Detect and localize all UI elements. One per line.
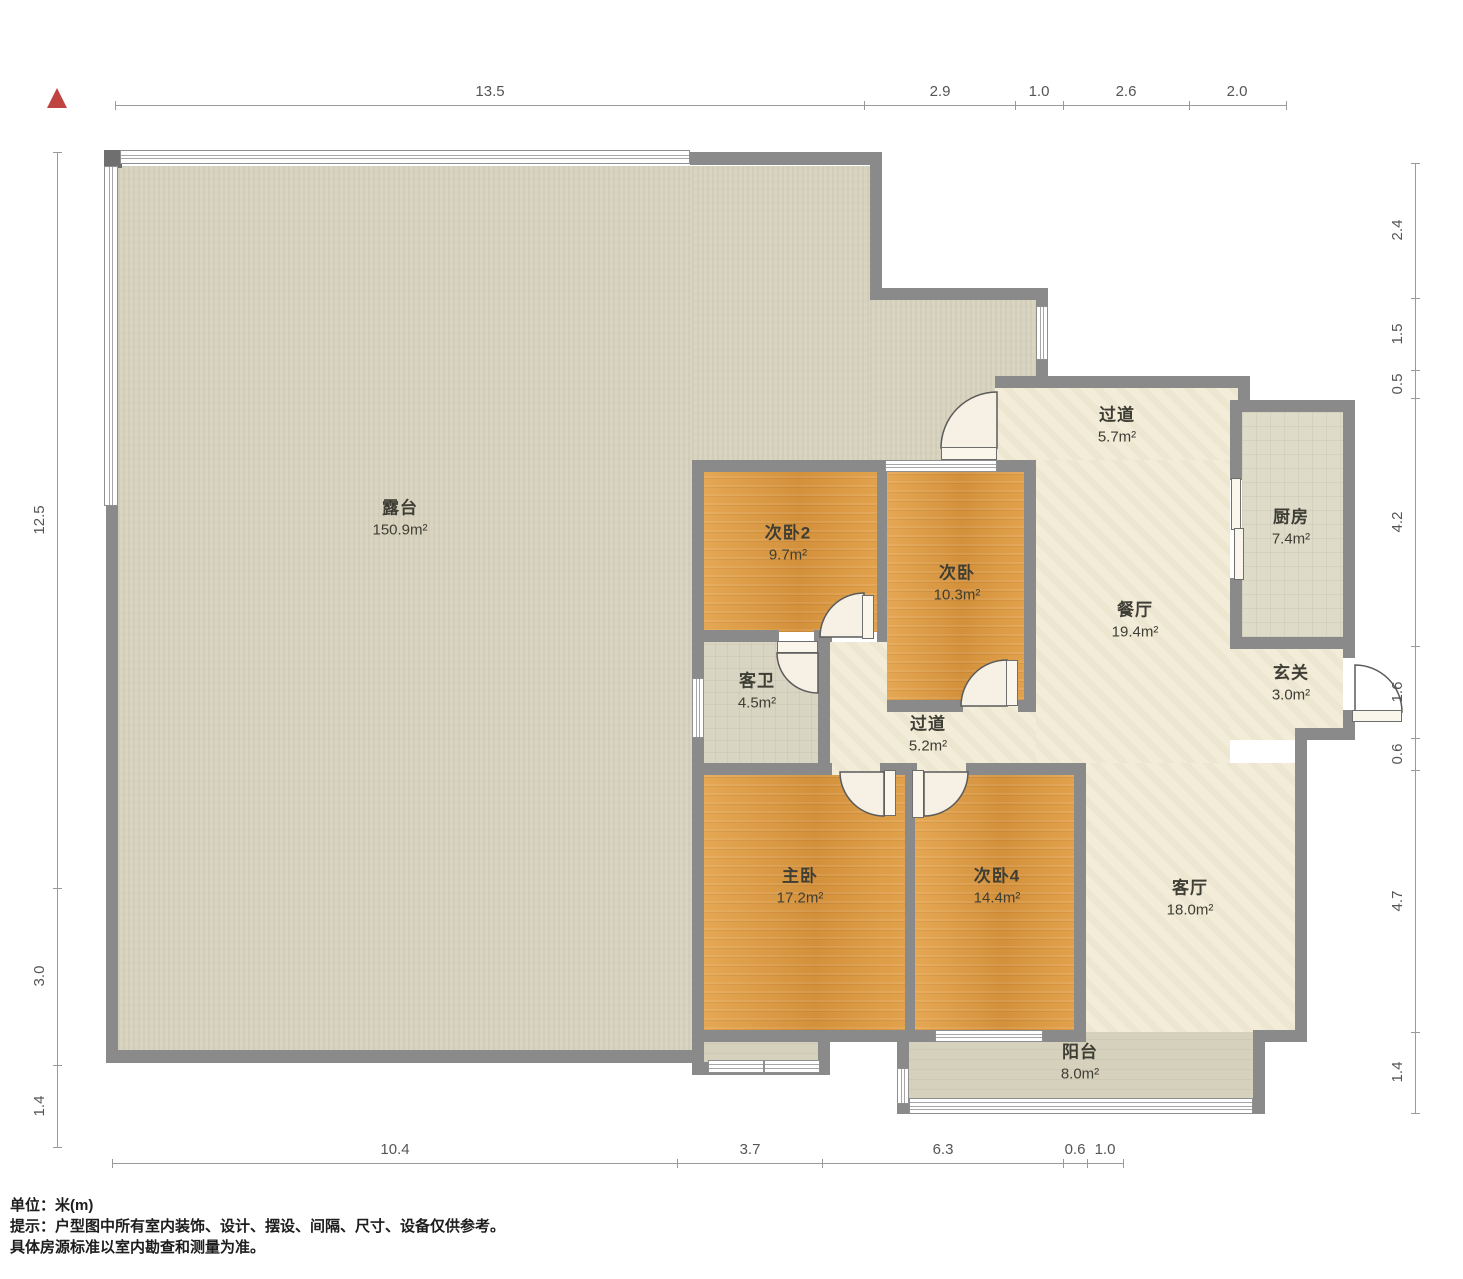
dimension-line [1415,163,1416,1113]
dimension-line [1411,738,1420,739]
room-name: 次卧2 [765,519,811,544]
dimension-line [1063,1159,1064,1168]
dimension-label: 3.0 [31,954,49,998]
wall [1233,400,1355,412]
dimension-label: 12.5 [31,498,49,542]
dimension-line [1411,298,1420,299]
dimension-line [53,1065,62,1066]
room-label: 厨房7.4m² [1272,503,1310,548]
master-door-slab [884,770,896,816]
wall [106,1050,704,1063]
bedroom2-door-slab [862,595,874,639]
room-name: 露台 [372,494,427,519]
wall [703,763,832,775]
kitchen-slider-panel [1231,478,1241,530]
dimension-line [677,1159,678,1168]
window-terrace-step [1036,306,1048,360]
wall [966,763,1085,775]
dimension-label: 2.6 [1101,83,1151,100]
dimension-line [1411,1113,1420,1114]
wall [1018,700,1036,712]
bedroom4-door-slab [912,770,924,818]
wall [870,288,1048,300]
wall [1230,400,1242,480]
room-label: 次卧414.4m² [974,862,1021,907]
room-area: 4.5m² [738,695,776,712]
dimension-line [112,1159,113,1168]
dimension-line [53,152,62,153]
dimension-line [115,105,1286,106]
dimension-label: 1.5 [1389,312,1407,356]
wall [692,460,704,1052]
wall [1253,1030,1265,1114]
dimension-label: 2.0 [1212,83,1262,100]
master-door-arc-icon [840,772,884,816]
room-area: 14.4m² [974,890,1021,907]
wall [1295,736,1307,1042]
room-area: 7.4m² [1272,531,1310,548]
wall [818,642,830,765]
room-label: 次卧10.3m² [934,559,981,604]
dimension-label: 13.5 [465,83,515,100]
room-area: 17.2m² [777,890,824,907]
window-balcony-left [897,1068,909,1104]
window-bay-left-pane [708,1060,764,1073]
room-name: 玄关 [1272,659,1310,684]
dimension-label: 0.5 [1389,362,1407,406]
dimension-line [1189,101,1190,110]
dimension-label: 2.9 [915,83,965,100]
window-bathroom [692,678,704,738]
dimension-line [1123,1159,1124,1168]
room-label: 客卫4.5m² [738,667,776,712]
dimension-label: 4.7 [1389,879,1407,923]
terrace-floor-upper [692,166,870,460]
bedroom3-door-arc-icon [961,660,1007,706]
window-terrace-top [120,150,690,164]
footer-standard-line: 具体房源标准以室内勘查和测量为准。 [10,1237,505,1258]
wall [1074,763,1086,1042]
room-name: 次卧 [934,559,981,584]
window-bedroom3-top [885,460,997,472]
terrace-door-slab [941,447,997,460]
footer-tip-line: 提示：户型图中所有室内装饰、设计、摆设、间隔、尺寸、设备仅供参考。 [10,1216,505,1237]
wall [877,460,887,642]
dimension-line [1286,101,1287,110]
room-label: 阳台8.0m² [1061,1038,1099,1083]
dimension-label: 0.6 [1389,732,1407,776]
room-label: 露台150.9m² [372,494,427,539]
dimension-label: 1.4 [31,1084,49,1128]
dimension-line [1411,398,1420,399]
dimension-line [53,1147,62,1148]
wall [1230,637,1355,649]
room-label: 过道5.2m² [909,710,947,755]
room-area: 9.7m² [765,547,811,564]
wall [995,460,1036,472]
wall [692,1030,909,1042]
room-name: 次卧4 [974,862,1021,887]
wall [995,376,1250,388]
dimension-label: 3.7 [725,1141,775,1158]
dimension-line [1087,1159,1088,1168]
wall [1343,400,1355,658]
room-label: 餐厅19.4m² [1112,596,1159,641]
room-label: 过道5.7m² [1098,401,1136,446]
room-area: 5.2m² [909,738,947,755]
window-terrace-left [104,166,118,506]
room-area: 8.0m² [1061,1066,1099,1083]
bedroom4-door-arc-icon [924,772,968,816]
bedroom3-door-slab [1006,660,1018,706]
north-arrow-icon [47,88,67,108]
wall [106,505,118,1063]
dimension-line [1411,770,1420,771]
room-label: 次卧29.7m² [765,519,811,564]
room-area: 150.9m² [372,522,427,539]
room-name: 餐厅 [1112,596,1159,621]
window-balcony-rail [909,1098,1253,1114]
room-name: 主卧 [777,862,824,887]
dimension-line [1063,101,1064,110]
room-area: 5.7m² [1098,429,1136,446]
wall [1024,460,1036,712]
dimension-line [1411,646,1420,647]
terrace-floor [118,166,692,1052]
footer-unit-line: 单位：米(m) [10,1195,505,1216]
room-name: 过道 [909,710,947,735]
floorplan-canvas: 露台150.9m²过道5.7m²厨房7.4m²次卧29.7m²次卧10.3m²餐… [0,0,1463,1279]
dimension-line [112,1163,1123,1164]
wall [870,152,882,300]
wall [703,630,779,642]
dimension-line [1411,1032,1420,1033]
room-area: 10.3m² [934,587,981,604]
dimension-line [1411,370,1420,371]
dimension-label: 1.4 [1389,1050,1407,1094]
dimension-line [53,888,62,889]
dimension-label: 6.3 [918,1141,968,1158]
room-label: 玄关3.0m² [1272,659,1310,704]
dimension-label: 1.0 [1080,1141,1130,1158]
room-label: 客厅18.0m² [1167,874,1214,919]
room-area: 3.0m² [1272,687,1310,704]
room-name: 客卫 [738,667,776,692]
bathroom-door-slab [777,641,818,653]
wall [690,152,882,165]
dimension-label: 10.4 [370,1141,420,1158]
dimension-line [57,152,58,1147]
kitchen-slider-panel [1234,528,1244,580]
dimension-line [1015,101,1016,110]
room-name: 厨房 [1272,503,1310,528]
room-area: 18.0m² [1167,902,1214,919]
window-bedroom4-balcony [935,1030,1043,1042]
bathroom-door-arc-icon [777,653,818,693]
dimension-label: 1.6 [1389,670,1407,714]
terrace-door-arc-icon [941,392,997,448]
dimension-line [115,101,116,110]
room-name: 阳台 [1061,1038,1099,1063]
window-bay-right-pane [764,1060,820,1073]
room-area: 19.4m² [1112,624,1159,641]
dimension-line [822,1159,823,1168]
dimension-line [1411,163,1420,164]
room-name: 过道 [1098,401,1136,426]
dimension-label: 2.4 [1389,208,1407,252]
room-label: 主卧17.2m² [777,862,824,907]
bedroom2-door-arc-icon [820,593,864,637]
wall [692,460,882,472]
footer-notes: 单位：米(m) 提示：户型图中所有室内装饰、设计、摆设、间隔、尺寸、设备仅供参考… [10,1195,505,1258]
dimension-label: 4.2 [1389,500,1407,544]
dimension-line [864,101,865,110]
room-name: 客厅 [1167,874,1214,899]
dimension-label: 1.0 [1014,83,1064,100]
